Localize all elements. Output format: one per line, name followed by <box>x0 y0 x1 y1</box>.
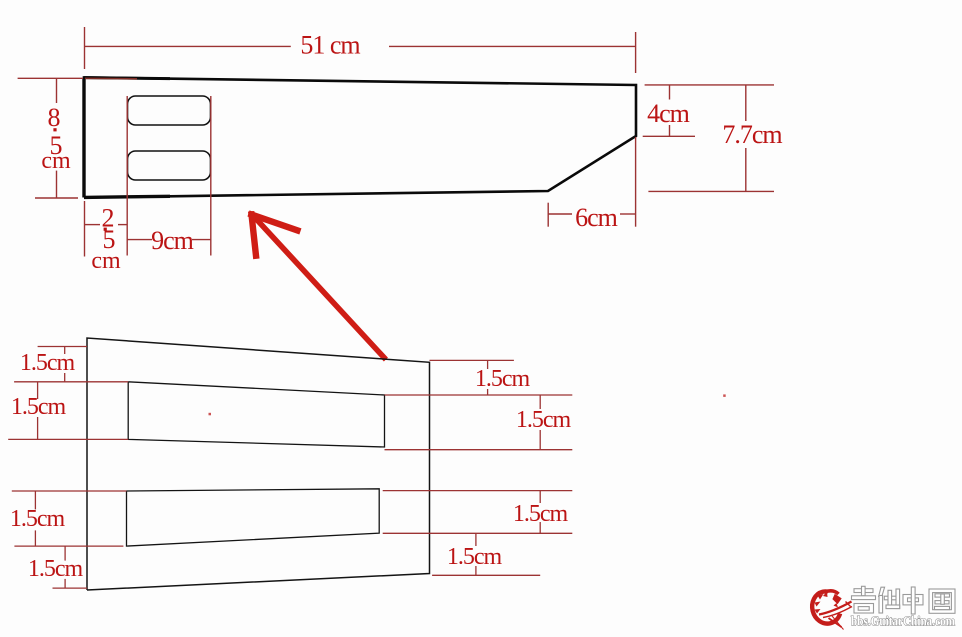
svg-text:bbs.GuitarChina.com: bbs.GuitarChina.com <box>851 613 956 628</box>
svg-text:1.5cm: 1.5cm <box>28 556 84 582</box>
svg-text:1.5cm: 1.5cm <box>447 544 503 570</box>
svg-text:9cm: 9cm <box>151 226 194 255</box>
svg-text:1.5cm: 1.5cm <box>516 407 572 433</box>
svg-text:1.5cm: 1.5cm <box>475 366 531 392</box>
svg-text:8: 8 <box>48 103 61 132</box>
svg-text:4cm: 4cm <box>647 99 690 128</box>
svg-text:51 cm: 51 cm <box>300 31 360 60</box>
svg-text:1.5cm: 1.5cm <box>10 506 66 532</box>
svg-text:1.5cm: 1.5cm <box>11 394 67 420</box>
svg-text:cm: cm <box>41 148 71 174</box>
svg-text:1.5cm: 1.5cm <box>20 350 76 376</box>
svg-text:6cm: 6cm <box>575 203 618 232</box>
svg-text:7.7cm: 7.7cm <box>722 120 782 149</box>
svg-text:1.5cm: 1.5cm <box>513 501 569 527</box>
svg-text:cm: cm <box>91 248 121 274</box>
